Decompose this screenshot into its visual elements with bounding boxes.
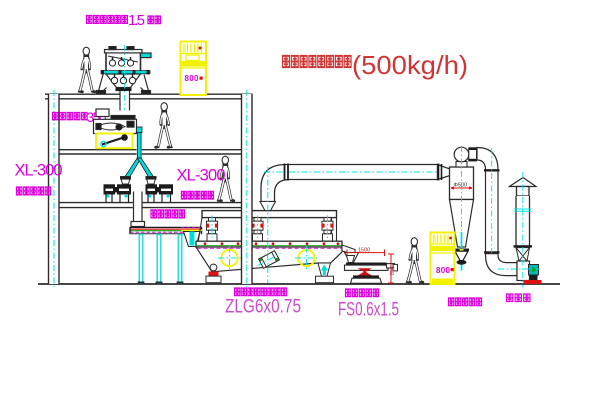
svg-text:800: 800 <box>185 74 200 83</box>
svg-text:340: 340 <box>388 266 394 275</box>
svg-text:ZLG6x0.75: ZLG6x0.75 <box>225 297 301 318</box>
svg-text:1500: 1500 <box>358 248 370 254</box>
svg-text:(500kg/h): (500kg/h) <box>352 50 468 80</box>
svg-text:1.5: 1.5 <box>128 12 145 29</box>
svg-text:800: 800 <box>436 266 451 275</box>
svg-text:FS0.6x1.5: FS0.6x1.5 <box>338 300 399 321</box>
svg-text:XL-300: XL-300 <box>177 167 226 185</box>
svg-text:XL-300: XL-300 <box>15 162 63 180</box>
